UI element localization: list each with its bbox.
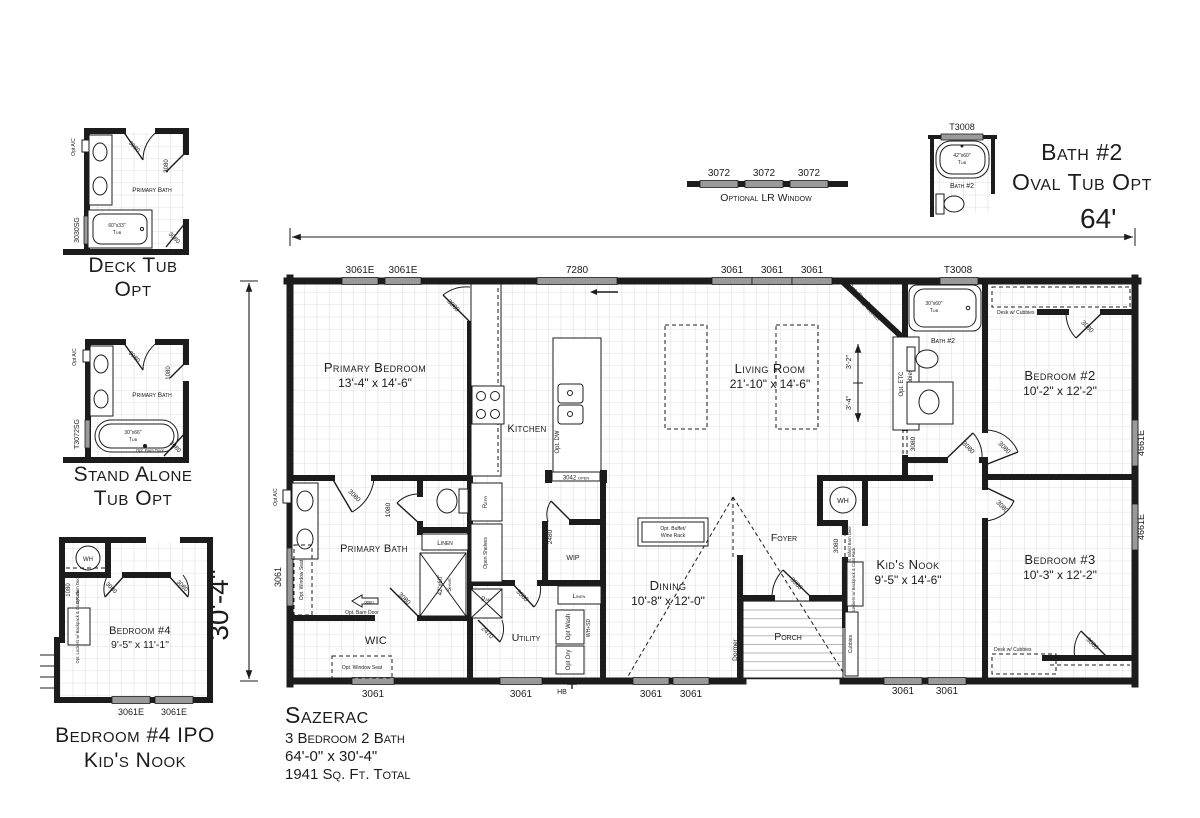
tub-size: 60"x33" bbox=[108, 223, 125, 229]
window-label: T3008 bbox=[944, 265, 973, 276]
linen-label: Linen bbox=[573, 594, 586, 600]
window-label: 3061 bbox=[936, 686, 959, 697]
window-label: 3061 bbox=[640, 689, 663, 700]
room-name: Foyer bbox=[771, 532, 797, 544]
room-name: Kid's Nook bbox=[876, 557, 939, 572]
door-label: 1080 bbox=[385, 502, 392, 517]
dormer-label: Dormer bbox=[732, 638, 739, 661]
sink-basin bbox=[558, 405, 583, 424]
window-label: 3072 bbox=[708, 168, 731, 179]
hose-bib-label: HB bbox=[557, 689, 567, 696]
plan-area: 1941 Sq. Ft. Total bbox=[285, 766, 410, 783]
room-name: Dining bbox=[650, 578, 687, 593]
toilet-bowl bbox=[944, 196, 964, 212]
water-heater-label: WH bbox=[837, 498, 849, 505]
room-name: Primary Bedroom bbox=[324, 360, 426, 375]
window-label: 4661E bbox=[1136, 514, 1146, 540]
inset-caption: Kid's Nook bbox=[84, 749, 186, 772]
room-name: Bedroom #2 bbox=[1024, 368, 1095, 383]
room-name: Utility bbox=[512, 632, 541, 644]
open-label: open bbox=[364, 600, 374, 605]
kitchen-counter bbox=[471, 284, 501, 476]
window-label: 4661E bbox=[1136, 430, 1146, 456]
inset-caption: Tub Opt bbox=[94, 487, 173, 510]
tub-word: Tub bbox=[113, 230, 122, 236]
room-name: Bedroom #3 bbox=[1024, 552, 1095, 567]
shelves-label: Open Shelves bbox=[483, 537, 489, 569]
window-label: 3061 bbox=[362, 689, 385, 700]
room-size: 10'-8" x 12'-0" bbox=[631, 594, 705, 608]
refrigerator-label: Refr bbox=[483, 496, 489, 508]
window-label: 3030SG bbox=[74, 217, 81, 243]
door-label: 3080 bbox=[164, 159, 170, 173]
inset-bath2-oval-tub: T3008 42"x60" Tub Bath #2 Bath #2 Oval T… bbox=[930, 122, 1152, 215]
window-label: 3061 bbox=[761, 265, 784, 276]
window-seat-label: Opt. Window Seat bbox=[342, 665, 383, 671]
dryer-label: Opt Dry bbox=[566, 650, 572, 671]
dim-label: 3'-4" bbox=[846, 396, 853, 410]
room-name: Bedroom #4 bbox=[109, 625, 171, 637]
buffet-label: Wine Rack bbox=[661, 533, 686, 539]
sink-basin bbox=[558, 384, 583, 403]
window-label: 3061E bbox=[389, 265, 418, 276]
window-label: 3061E bbox=[346, 265, 375, 276]
opt-ac-label: Opt A/C bbox=[71, 138, 77, 156]
room-size: 13'-4" x 14'-6" bbox=[338, 376, 412, 390]
inset-caption: Oval Tub Opt bbox=[1012, 169, 1152, 195]
whsd-label: WH+SD bbox=[586, 619, 592, 638]
toilet-tank bbox=[459, 489, 468, 513]
inset-caption: Bath #2 bbox=[1041, 139, 1123, 165]
tub-size: 30"x66" bbox=[124, 430, 141, 436]
room-size: 10'-3" x 12'-2" bbox=[1023, 568, 1097, 582]
desk-label: Desk w/ Cubbies bbox=[997, 310, 1035, 316]
room-size: 10'-2" x 12'-2" bbox=[1023, 384, 1097, 398]
tub-word: Tub bbox=[958, 160, 967, 166]
plan-size: 64'-0" x 30'-4" bbox=[285, 748, 377, 765]
window-seat-label: Opt. Window Seat bbox=[299, 559, 305, 600]
door-label: 3080 bbox=[833, 538, 840, 553]
tub-word: Tub bbox=[930, 308, 939, 314]
room-name: WIP bbox=[566, 555, 580, 562]
buffet-label: Opt. Buffet/ bbox=[660, 526, 686, 532]
deck-tub bbox=[88, 210, 152, 248]
room-name: Kitchen bbox=[507, 423, 546, 435]
door-label: 2480 bbox=[547, 529, 554, 544]
vanity bbox=[292, 483, 318, 559]
door-label: 3080 bbox=[910, 436, 917, 451]
room-name: Primary Bath bbox=[340, 543, 408, 555]
linen-label: Linen bbox=[437, 540, 453, 547]
desk-label: Desk w/ Cubbies bbox=[994, 647, 1032, 653]
inset-caption: Optional LR Window bbox=[720, 192, 812, 204]
dim-label: 3'-2" bbox=[846, 355, 853, 369]
room-name: Living Room bbox=[735, 361, 806, 376]
room-name: Primary Bath bbox=[132, 187, 172, 194]
tub-word: Tub bbox=[129, 437, 138, 443]
door-label: 1080 bbox=[66, 583, 72, 597]
inset-caption: Bedroom #4 IPO bbox=[55, 724, 215, 747]
window-label: 3061 bbox=[892, 686, 915, 697]
window-label: T3008 bbox=[949, 122, 975, 132]
tub-size: 42"x60" bbox=[953, 153, 970, 159]
shower-word: Shwr bbox=[447, 578, 453, 592]
width-dimension: 64' bbox=[1080, 203, 1117, 234]
window-label: 3061E bbox=[118, 707, 144, 717]
range bbox=[472, 386, 504, 424]
room-name: Bath #2 bbox=[931, 338, 955, 345]
door-label: 1080 bbox=[166, 366, 172, 380]
room-name: Primary Bath bbox=[132, 392, 172, 399]
room-name: Bath #2 bbox=[950, 183, 974, 190]
lockers-label: Opt. Lockers w/ Backpack & Coat Rack bbox=[75, 590, 80, 664]
lockers-label: Opt. Lockers w/ Backpack & Coat Rack bbox=[851, 547, 856, 621]
cubbies-label: Cubbies bbox=[848, 634, 854, 653]
toilet-tank bbox=[907, 347, 915, 371]
room-name: Porch bbox=[774, 631, 802, 643]
inset-caption: Stand Alone bbox=[74, 463, 193, 486]
window-label: 3061 bbox=[510, 689, 533, 700]
toilet-bowl bbox=[916, 350, 938, 368]
main-floor-plan: 3061E 3061E 7280 3061 3061 3061 T3008 30… bbox=[273, 265, 1146, 700]
toilet-tank bbox=[936, 194, 944, 214]
plan-spec: 3 Bedroom 2 Bath bbox=[285, 730, 405, 747]
inset-stand-alone-tub: 30"x66" Tub Primary Bath T3072SG Opt A/C… bbox=[66, 342, 192, 510]
window-label: T3072SG bbox=[74, 419, 81, 449]
room-name: WIC bbox=[365, 635, 387, 647]
water-heater-label: WH bbox=[83, 557, 93, 563]
shower-size: 42"x60" bbox=[438, 575, 444, 596]
floor-plan-sheet: 3061E 3061E 7280 3061 3061 3061 T3008 30… bbox=[0, 0, 1200, 818]
title-block: Sazerac 3 Bedroom 2 Bath 64'-0" x 30'-4"… bbox=[285, 702, 410, 783]
window-label: 3061 bbox=[273, 567, 283, 587]
window-label: 7280 bbox=[566, 265, 589, 276]
room-size: 21'-10" x 14'-6" bbox=[730, 377, 810, 391]
inset-bedroom4: WH 1080 Opt. Barn Door Opt. Lockers w/ B… bbox=[40, 540, 215, 772]
floor-plan-drawing: 3061E 3061E 7280 3061 3061 3061 T3008 30… bbox=[0, 0, 1200, 818]
pantry-label: Pan bbox=[481, 597, 491, 603]
opt-ac-label: Opt A/C bbox=[72, 348, 78, 366]
washer-label: Opt Wash bbox=[566, 614, 572, 640]
window-label: 3061 bbox=[721, 265, 744, 276]
inset-deck-tub: 60"x33" Tub Primary Bath 3030SG Opt A/C … bbox=[66, 131, 186, 301]
room-size: 9'-5" x 11'-1" bbox=[111, 639, 169, 651]
pass-through-label: 3042 open bbox=[563, 476, 589, 482]
window-label: 3072 bbox=[753, 168, 776, 179]
vanity bbox=[90, 346, 113, 416]
vanity bbox=[907, 382, 953, 424]
room-size: 9'-5" x 14'-6" bbox=[874, 573, 941, 587]
barn-door-label: Opt. Barn Door bbox=[345, 610, 379, 616]
etc-label: Opt. ETC bbox=[899, 371, 905, 397]
inset-lr-window: 3072 3072 3072 Optional LR Window bbox=[690, 168, 845, 204]
barn-door-label: Opt. Barn Door bbox=[136, 448, 165, 453]
toilet-bowl bbox=[437, 489, 457, 513]
opt-ac-label: Opt A/C bbox=[273, 488, 279, 506]
plan-name: Sazerac bbox=[285, 702, 369, 728]
inset-caption: Deck Tub bbox=[88, 254, 177, 277]
window-label: 3061E bbox=[161, 707, 187, 717]
tub-size: 30"x60" bbox=[925, 301, 942, 307]
window-label: 3072 bbox=[798, 168, 821, 179]
window-label: 3061 bbox=[801, 265, 824, 276]
window-label: 3061 bbox=[680, 689, 703, 700]
dishwasher-label: Opt. DW bbox=[555, 430, 561, 453]
inset-caption: Opt bbox=[114, 278, 151, 301]
